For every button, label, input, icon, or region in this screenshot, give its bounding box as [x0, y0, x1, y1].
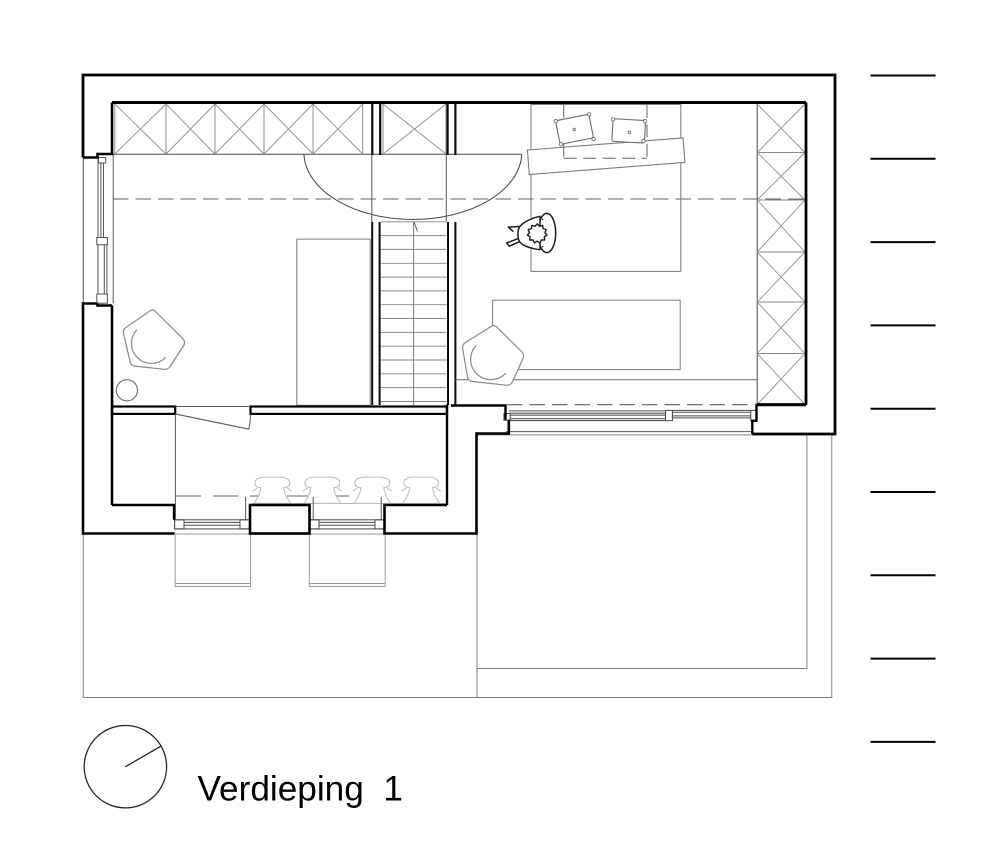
svg-text:Verdieping 1: Verdieping 1: [198, 770, 403, 809]
